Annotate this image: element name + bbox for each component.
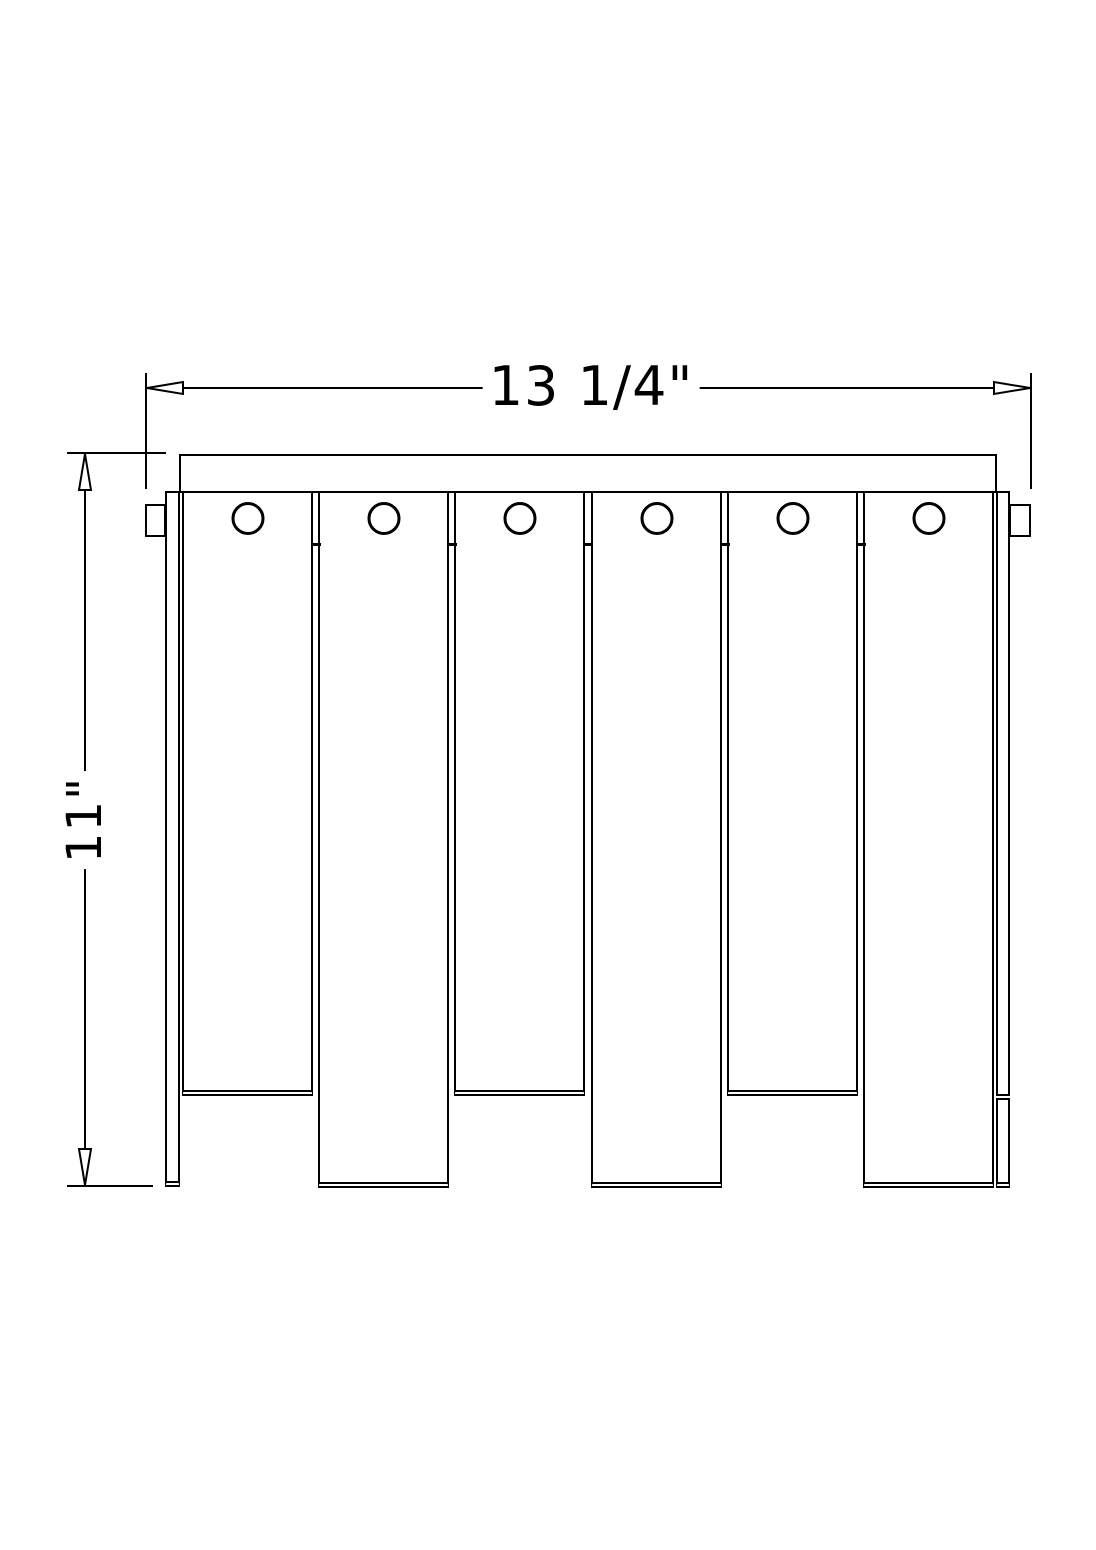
- fixture-right-mount-tab: [1009, 504, 1031, 537]
- hanger-hole-6: [912, 502, 945, 535]
- hanger-hole-2: [367, 502, 400, 535]
- gap-edge-tick-1: [311, 543, 321, 546]
- height-dimension-line-upper: [84, 455, 86, 787]
- height-dimension-line-lower: [84, 853, 86, 1186]
- gap-edge-tick-3: [583, 543, 593, 546]
- glass-slat-6: [863, 491, 994, 1188]
- hanger-hole-3: [503, 502, 536, 535]
- gap-edge-tick-4: [720, 543, 730, 546]
- glass-slat-5: [727, 491, 858, 1096]
- fixture-canopy: [179, 454, 997, 493]
- width-dimension-line-right: [678, 387, 1031, 389]
- width-arrowhead-right-icon: [993, 380, 1031, 396]
- height-arrowhead-down-icon: [77, 1148, 93, 1186]
- height-dimension-label: 11": [61, 771, 109, 869]
- height-arrowhead-up-icon: [77, 453, 93, 491]
- glass-slat-4: [591, 491, 722, 1188]
- fixture-left-mount-tab: [145, 504, 166, 537]
- gap-edge-tick-2: [447, 543, 457, 546]
- hanger-hole-4: [640, 502, 673, 535]
- width-arrowhead-left-icon: [146, 380, 184, 396]
- width-dimension-label: 13 1/4": [483, 360, 700, 414]
- fixture-right-rail-upper: [996, 491, 1010, 1096]
- hanger-hole-1: [231, 502, 264, 535]
- gap-edge-tick-5: [856, 543, 866, 546]
- glass-slat-2: [318, 491, 449, 1188]
- width-dimension-line-left: [146, 387, 504, 389]
- glass-slat-3: [454, 491, 585, 1096]
- drawing-canvas: 13 1/4" 11": [0, 0, 1096, 1550]
- hanger-hole-5: [776, 502, 809, 535]
- glass-slat-1: [182, 491, 313, 1096]
- fixture-left-rail: [165, 491, 180, 1187]
- fixture-right-rail-lower: [996, 1098, 1010, 1188]
